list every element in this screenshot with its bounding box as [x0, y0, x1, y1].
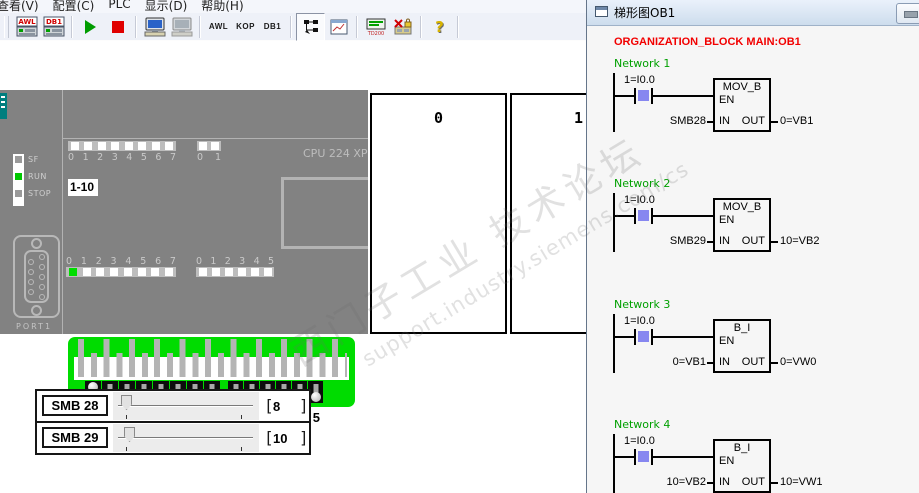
slider-tick	[241, 415, 242, 419]
led	[212, 268, 220, 276]
contact-operand: 1=I0.0	[624, 315, 655, 327]
slider-tick	[241, 447, 242, 451]
instruction-box: MOV_B EN IN OUT	[713, 78, 771, 132]
wire	[707, 362, 713, 364]
connect-button[interactable]	[141, 14, 168, 40]
contact-operand: 1=I0.0	[624, 435, 655, 447]
sim-awl-button[interactable]: AWL	[13, 14, 40, 40]
output-led-strip-2	[197, 141, 221, 151]
digit-label: 0	[197, 152, 203, 163]
network-label: Network 3	[614, 298, 670, 311]
screw-icon	[31, 238, 42, 249]
slider-tick	[126, 415, 127, 419]
forcing-lock-icon	[393, 18, 413, 36]
contact-power-indicator	[638, 90, 649, 101]
slider-thumb[interactable]	[124, 427, 135, 442]
smb29-row: SMB 29 [ 10 ]	[35, 421, 311, 455]
value-bracket: ]	[299, 428, 309, 447]
wire	[771, 362, 778, 364]
led	[69, 268, 77, 276]
wire	[707, 121, 713, 123]
wire	[653, 215, 713, 217]
digit-label: 2	[97, 152, 103, 163]
digit-label: 4	[125, 256, 131, 267]
network-4: Network 4 1=I0.0 B_I EN IN OUT 10=VB2 10…	[613, 418, 913, 493]
digit-label: 3	[111, 256, 117, 267]
network-label: Network 4	[614, 418, 670, 431]
network-2: Network 2 1=I0.0 MOV_B EN IN OUT SMB29 1…	[613, 177, 913, 297]
output-digits-1: 01234567	[68, 152, 176, 163]
question-mark-icon: ?	[435, 18, 444, 36]
led	[83, 268, 91, 276]
led	[71, 142, 79, 150]
led	[111, 142, 119, 150]
led	[251, 268, 259, 276]
digit-label: 5	[268, 256, 274, 267]
digit-label: 7	[170, 256, 176, 267]
digit-label: 5	[140, 256, 146, 267]
instruction-box: B_I EN IN OUT	[713, 319, 771, 373]
power-rail	[613, 73, 615, 132]
simulator-canvas: SF RUN STOP 01234567 01 CPU 224 XP 1-10 …	[0, 41, 586, 493]
contact-power-indicator	[638, 451, 649, 462]
smb28-row: SMB 28 [ 8 ]	[35, 389, 311, 423]
wire	[653, 95, 713, 97]
digit-label: 5	[313, 410, 320, 425]
digit-label: 5	[141, 152, 147, 163]
output-digits-2: 01	[197, 152, 221, 163]
digit-label: 6	[155, 152, 161, 163]
window-icon	[595, 6, 608, 17]
led	[124, 268, 132, 276]
contact-bar	[634, 208, 636, 224]
menu-plc[interactable]: PLC	[101, 0, 137, 13]
db9-socket	[24, 250, 49, 303]
wire	[707, 482, 713, 484]
smb29-slider[interactable]	[113, 424, 259, 452]
panel-divider	[62, 90, 63, 334]
out-operand: 0=VB1	[780, 115, 813, 127]
led	[225, 268, 233, 276]
digit-label: 0	[196, 256, 202, 267]
contact-power-indicator	[638, 210, 649, 221]
contact-operand: 1=I0.0	[624, 194, 655, 206]
led	[110, 268, 118, 276]
input-led-strip-2	[196, 267, 274, 277]
menu-help[interactable]: 帮助(H)	[194, 0, 250, 13]
toolbar: AWL DB1	[0, 13, 586, 41]
out-operand: 10=VW1	[780, 476, 823, 488]
digit-label: 6	[155, 256, 161, 267]
ladder-window: 梯形图OB1 ORGANIZATION_BLOCK MAIN:OB1 Netwo…	[586, 0, 919, 493]
sf-led	[15, 156, 22, 163]
toolbar-separator	[356, 16, 358, 38]
in-operand: 0=VB1	[633, 356, 706, 368]
led	[264, 268, 272, 276]
cpu-panel: SF RUN STOP 01234567 01 CPU 224 XP 1-10 …	[0, 90, 368, 334]
toolbar-separator	[71, 16, 73, 38]
led	[165, 142, 173, 150]
contact-bar	[634, 329, 636, 345]
slider-track[interactable]	[118, 405, 253, 407]
digit-label: 0	[68, 152, 74, 163]
smb29-label: SMB 29	[42, 427, 108, 448]
ladder-window-title: 梯形图OB1	[614, 4, 675, 21]
digit-label: 7	[170, 152, 176, 163]
menu-display[interactable]: 显示(D)	[138, 0, 195, 13]
computer-icon	[144, 17, 166, 37]
toolbar-separator	[457, 16, 459, 38]
slider-track[interactable]	[118, 437, 253, 439]
menu-view[interactable]: 查看(V)	[0, 0, 46, 13]
digit-label: 3	[112, 152, 118, 163]
led	[238, 268, 246, 276]
wire	[653, 336, 713, 338]
ladder-titlebar[interactable]: 梯形图OB1	[587, 0, 919, 26]
program-monitor-button[interactable]	[296, 13, 325, 41]
cancel-forcing-button[interactable]	[389, 14, 416, 40]
contact-power-indicator	[638, 331, 649, 342]
stop-button[interactable]	[104, 14, 131, 40]
digit-label: 2	[225, 256, 231, 267]
disconnect-button[interactable]	[168, 14, 195, 40]
wire	[707, 241, 713, 243]
in-operand: SMB28	[633, 115, 706, 127]
smb28-label: SMB 28	[42, 395, 108, 416]
contact-bar	[634, 88, 636, 104]
wire	[771, 482, 778, 484]
out-operand: 0=VW0	[780, 356, 816, 368]
digit-label: 1	[83, 152, 89, 163]
led	[211, 142, 219, 150]
power-rail	[613, 314, 615, 373]
wire	[615, 95, 634, 97]
led	[96, 268, 104, 276]
display-column-0: 0	[370, 93, 507, 334]
svg-text:TD200: TD200	[366, 31, 383, 36]
led	[151, 268, 159, 276]
slider-tick	[126, 447, 127, 451]
wire	[771, 241, 778, 243]
svg-text:AWL: AWL	[18, 18, 36, 26]
wire	[615, 215, 634, 217]
run-led	[15, 173, 22, 180]
smb28-slider[interactable]	[113, 392, 259, 420]
cpu-model-label: CPU 224 XP	[303, 147, 365, 160]
led	[98, 142, 106, 150]
screw-icon	[31, 305, 42, 316]
led	[199, 268, 207, 276]
smb28-value[interactable]: 8	[273, 399, 280, 414]
in-operand: SMB29	[633, 235, 706, 247]
toolbar-grip	[4, 16, 9, 38]
in-operand: 10=VB2	[633, 476, 706, 488]
minimize-button[interactable]	[896, 3, 919, 24]
input-led-strip-1	[66, 267, 176, 277]
wire	[771, 121, 778, 123]
wire	[615, 336, 634, 338]
program-structure-icon	[302, 18, 320, 36]
td200-button[interactable]: TD200	[362, 14, 389, 40]
led	[199, 142, 207, 150]
port1-label: PORT1	[16, 322, 52, 331]
led	[125, 142, 133, 150]
out-operand: 10=VB2	[780, 235, 819, 247]
toolbar-separator	[199, 16, 201, 38]
svg-text:DB1: DB1	[45, 18, 61, 26]
stop-label: STOP	[28, 189, 51, 198]
led	[152, 142, 160, 150]
menu-bar: 查看(V) 配置(C) PLC 显示(D) 帮助(H)	[0, 0, 588, 13]
sim-db1-icon: DB1	[43, 16, 65, 38]
value-bracket: ]	[299, 396, 309, 415]
digit-label: 3	[239, 256, 245, 267]
led	[138, 142, 146, 150]
output-led-strip-1	[68, 141, 176, 151]
display-value-0: 0	[372, 109, 505, 127]
play-icon	[85, 20, 96, 34]
wire	[615, 456, 634, 458]
stop-icon	[112, 21, 124, 33]
port1-connector	[13, 235, 60, 318]
wire	[653, 456, 713, 458]
input-digits-2: 012345	[196, 256, 274, 267]
sf-label: SF	[28, 155, 39, 164]
network-label: Network 1	[614, 57, 670, 70]
minimize-icon	[904, 11, 918, 18]
power-rail	[613, 193, 615, 252]
power-rail	[613, 434, 615, 493]
led	[165, 268, 173, 276]
stop-led	[15, 190, 22, 197]
instruction-box: B_I EN IN OUT	[713, 439, 771, 493]
digit-label: 4	[126, 152, 132, 163]
awl-button[interactable]: AWL	[205, 14, 232, 40]
status-chart-button[interactable]	[325, 14, 352, 40]
computer-gray-icon	[171, 17, 193, 37]
station-address-box[interactable]: 1-10	[68, 179, 98, 196]
instruction-box: MOV_B EN IN OUT	[713, 198, 771, 252]
chart-window-icon	[330, 19, 348, 35]
memory-cartridge	[0, 93, 7, 119]
network-label: Network 2	[614, 177, 670, 190]
network-1: Network 1 1=I0.0 MOV_B EN IN OUT SMB28 0…	[613, 57, 913, 177]
digit-label: 1	[210, 256, 216, 267]
led	[138, 268, 146, 276]
network-3: Network 3 1=I0.0 B_I EN IN OUT 0=VB1 0=V…	[613, 298, 913, 418]
slider-thumb[interactable]	[121, 395, 132, 410]
toolbar-separator	[135, 16, 137, 38]
run-button[interactable]	[77, 14, 104, 40]
digit-label: 2	[96, 256, 102, 267]
toolbar-separator	[290, 16, 292, 38]
digit-label: 1	[215, 152, 221, 163]
terminal-pins	[91, 353, 347, 377]
organization-block-header: ORGANIZATION_BLOCK MAIN:OB1	[614, 36, 801, 48]
db1-button[interactable]: DB1	[259, 14, 286, 40]
expansion-slot	[281, 177, 368, 249]
td200-icon: TD200	[366, 18, 386, 36]
run-label: RUN	[28, 172, 47, 181]
contact-operand: 1=I0.0	[624, 74, 655, 86]
led	[84, 142, 92, 150]
panel-divider	[62, 138, 368, 139]
smb29-value[interactable]: 10	[273, 431, 287, 446]
help-button[interactable]: ?	[426, 14, 453, 40]
sim-db1-button[interactable]: DB1	[40, 14, 67, 40]
digit-label: 1	[81, 256, 87, 267]
digit-label: 0	[66, 256, 72, 267]
toolbar-separator	[420, 16, 422, 38]
contact-bar	[634, 449, 636, 465]
kop-button[interactable]: KOP	[232, 14, 259, 40]
menu-config[interactable]: 配置(C)	[46, 0, 102, 13]
input-digits-1: 01234567	[66, 256, 176, 267]
sim-awl-icon: AWL	[16, 16, 38, 38]
digit-label: 4	[254, 256, 260, 267]
